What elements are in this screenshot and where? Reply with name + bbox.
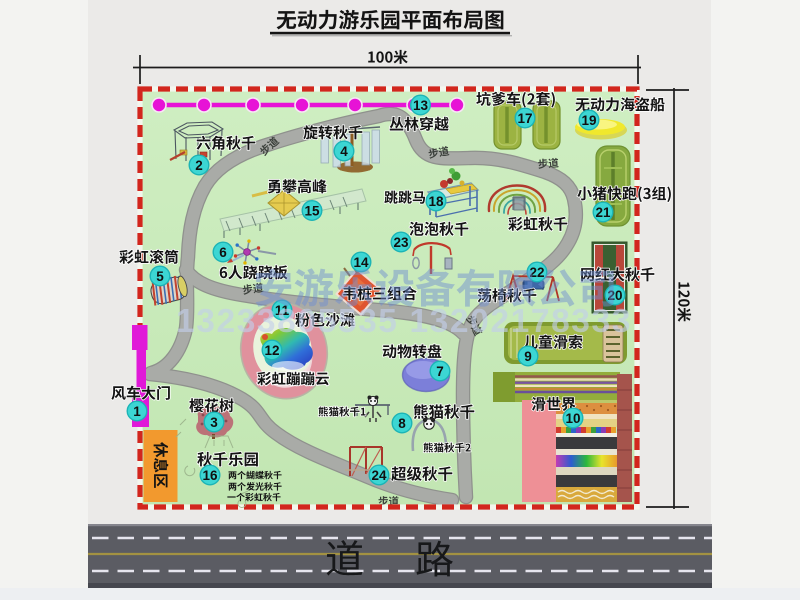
svg-text:2: 2	[195, 158, 203, 173]
svg-text:9: 9	[524, 349, 532, 364]
svg-text:17: 17	[517, 111, 532, 126]
svg-text:16: 16	[202, 468, 218, 483]
svg-text:7: 7	[436, 364, 444, 379]
svg-text:13: 13	[413, 98, 429, 113]
svg-text:19: 19	[581, 113, 596, 128]
svg-text:21: 21	[595, 205, 611, 220]
svg-text:12: 12	[264, 343, 279, 358]
svg-text:6: 6	[219, 245, 227, 260]
svg-text:13233805535 13202178333: 13233805535 13202178333	[176, 303, 632, 340]
svg-text:23: 23	[393, 235, 409, 250]
svg-text:4: 4	[340, 144, 348, 159]
svg-text:8: 8	[398, 416, 406, 431]
svg-text:1: 1	[133, 404, 141, 419]
svg-text:5: 5	[156, 269, 164, 284]
svg-text:18: 18	[428, 194, 444, 209]
svg-text:15: 15	[304, 203, 320, 218]
svg-text:24: 24	[371, 468, 387, 483]
svg-text:14: 14	[353, 255, 369, 270]
svg-text:3: 3	[210, 415, 218, 430]
svg-text:10: 10	[565, 411, 580, 426]
